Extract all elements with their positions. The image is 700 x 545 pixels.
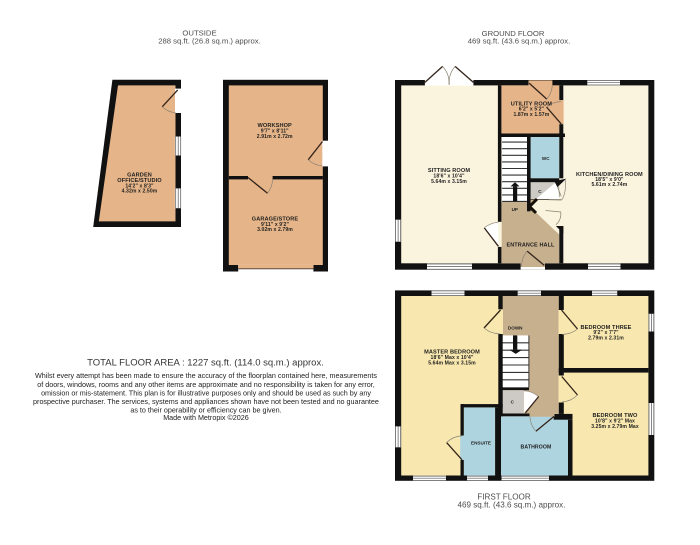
- svg-text:UP: UP: [512, 207, 518, 212]
- svg-text:1.87m x 1.57m: 1.87m x 1.57m: [513, 112, 549, 118]
- svg-text:2.91m x 2.72m: 2.91m x 2.72m: [257, 134, 293, 140]
- svg-text:3.02m x 2.79m: 3.02m x 2.79m: [257, 227, 293, 233]
- svg-text:DOWN: DOWN: [508, 325, 523, 330]
- svg-text:3.25m x 2.79m Max: 3.25m x 2.79m Max: [591, 424, 639, 430]
- svg-text:5.64m Max x 3.15m: 5.64m Max x 3.15m: [428, 361, 476, 367]
- svg-text:5.61m x 2.74m: 5.61m x 2.74m: [591, 182, 627, 188]
- svg-text:BATHROOM: BATHROOM: [521, 445, 552, 451]
- svg-text:469 sq.ft. (43.6 sq.m.) approx: 469 sq.ft. (43.6 sq.m.) approx.: [468, 37, 571, 46]
- svg-text:ENSUITE: ENSUITE: [471, 440, 491, 445]
- svg-text:288 sq.ft. (26.8 sq.m.) approx: 288 sq.ft. (26.8 sq.m.) approx.: [158, 36, 261, 45]
- svg-text:WC: WC: [542, 156, 550, 161]
- svg-text:5.64m x 3.15m: 5.64m x 3.15m: [431, 179, 467, 185]
- svg-text:Made with Metropix ©2026: Made with Metropix ©2026: [163, 413, 249, 422]
- svg-text:TOTAL FLOOR AREA : 1227 sq.ft.: TOTAL FLOOR AREA : 1227 sq.ft. (114.0 sq…: [87, 358, 324, 369]
- svg-text:4.32m x 2.50m: 4.32m x 2.50m: [122, 189, 158, 195]
- svg-text:469 sq.ft. (43.6 sq.m.) approx: 469 sq.ft. (43.6 sq.m.) approx.: [458, 501, 566, 510]
- svg-text:2.79m x 2.31m: 2.79m x 2.31m: [588, 336, 624, 342]
- svg-text:ENTRANCE HALL: ENTRANCE HALL: [506, 242, 555, 248]
